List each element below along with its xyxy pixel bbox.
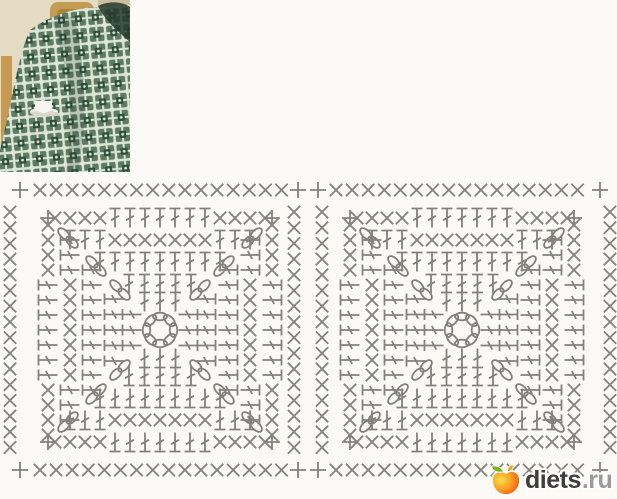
apple-icon xyxy=(489,463,523,497)
granny-square-motif xyxy=(39,209,282,452)
apple-body xyxy=(492,471,520,495)
apple-leaf-icon xyxy=(492,466,505,472)
diets-logo-watermark[interactable]: diets.ru xyxy=(489,463,612,497)
scanned-pattern-page: diets.ru xyxy=(0,0,617,499)
logo-text-brand: diets xyxy=(525,468,581,493)
granny-square-motif xyxy=(341,209,584,452)
afghan-photo xyxy=(0,0,130,172)
chain-oval-symbol xyxy=(162,313,177,328)
chain-oval-symbol xyxy=(464,313,479,328)
logo-text-tld: .ru xyxy=(582,468,612,493)
